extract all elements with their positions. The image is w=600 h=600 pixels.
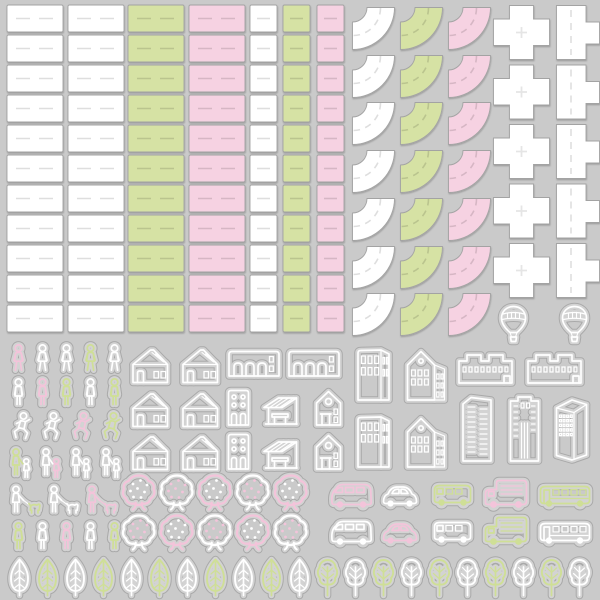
art-stroke [21, 388, 22, 395]
fruit-dot [177, 519, 180, 522]
fruit-dot [246, 496, 249, 499]
road-tile-square-straight[interactable] [283, 305, 310, 332]
art-stroke [63, 532, 64, 539]
art-stroke [87, 532, 88, 539]
fruit-dot [132, 536, 135, 539]
road-tile-square-straight[interactable] [250, 215, 277, 242]
road-tile-long-straight[interactable] [68, 245, 124, 272]
fruit-dot [295, 531, 298, 534]
sticker-vehicle-car[interactable] [384, 487, 417, 507]
road-tile-long-straight[interactable] [189, 185, 245, 212]
road-tile-square-straight[interactable] [283, 155, 310, 182]
fruit-dot [260, 484, 263, 487]
road-tile-long-straight[interactable] [7, 275, 63, 302]
tile-face [68, 155, 124, 182]
art-stroke [39, 388, 40, 395]
road-tile-long-straight[interactable] [128, 275, 184, 302]
fruit-dot [292, 536, 295, 539]
fruit-dot [219, 491, 222, 494]
sticker-person-standing[interactable] [63, 379, 71, 405]
sticker-tree-leaf[interactable] [291, 560, 308, 596]
fruit-dot [281, 490, 284, 493]
fruit-dot [257, 491, 260, 494]
fruit-dot [136, 487, 139, 490]
sticker-tree-leaf[interactable] [95, 560, 112, 596]
tile-face [7, 305, 63, 332]
fruit-dot [295, 491, 298, 494]
road-tile-long-straight[interactable] [68, 125, 124, 152]
sticker-person-standing[interactable] [39, 523, 47, 549]
sticker-tree-leaf[interactable] [263, 560, 280, 596]
tile-face [189, 275, 245, 302]
art-stroke [360, 501, 366, 507]
road-tile-square-straight[interactable] [317, 245, 344, 272]
sticker-person-standing[interactable] [15, 379, 23, 405]
road-tile-long-straight[interactable] [7, 125, 63, 152]
road-tile-long-straight[interactable] [7, 95, 63, 122]
road-tile-long-straight[interactable] [7, 155, 63, 182]
road-tile-long-straight[interactable] [128, 245, 184, 272]
road-tile-square-straight[interactable] [283, 5, 310, 32]
road-tile-square-straight[interactable] [317, 95, 344, 122]
art-stroke [360, 538, 366, 544]
sticker-person-standing[interactable] [111, 523, 119, 549]
road-tile-long-straight[interactable] [128, 155, 184, 182]
fruit-dot [260, 524, 263, 527]
fruit-dot [143, 531, 146, 534]
sticker-building-chapel-small[interactable] [317, 392, 341, 426]
sticker-person-standing[interactable] [111, 379, 119, 405]
road-tile-long-straight[interactable] [68, 5, 124, 32]
fruit-dot [178, 496, 181, 499]
fruit-dot [288, 487, 291, 490]
road-tile-long-straight[interactable] [189, 215, 245, 242]
art-stroke [87, 388, 88, 395]
road-tile-square-straight[interactable] [283, 185, 310, 212]
road-tile-square-straight[interactable] [250, 155, 277, 182]
art-stroke [387, 500, 393, 506]
fruit-dot [146, 484, 149, 487]
fruit-dot [170, 496, 173, 499]
road-tile-square-straight[interactable] [250, 125, 277, 152]
fruit-dot [216, 496, 219, 499]
fruit-dot [184, 524, 187, 527]
fruit-dot [140, 496, 143, 499]
road-tile-long-straight[interactable] [68, 305, 124, 332]
fruit-dot [250, 487, 253, 490]
road-tile-square-straight[interactable] [283, 275, 310, 302]
fruit-dot [167, 530, 170, 533]
fruit-dot [288, 527, 291, 530]
road-tile-long-straight[interactable] [189, 275, 245, 302]
art-stroke [51, 495, 52, 501]
road-tile-long-straight[interactable] [68, 155, 124, 182]
tile-face [68, 215, 124, 242]
road-tile-square-straight[interactable] [317, 155, 344, 182]
road-tile-square-straight[interactable] [317, 215, 344, 242]
road-tile-long-straight[interactable] [68, 185, 124, 212]
road-tile-long-straight[interactable] [128, 185, 184, 212]
fruit-dot [140, 536, 143, 539]
sticker-tree-leaf[interactable] [67, 560, 84, 596]
fruit-dot [298, 484, 301, 487]
sticker-tree-leaf[interactable] [39, 560, 56, 596]
fruit-dot [170, 483, 173, 486]
tile-face [68, 305, 124, 332]
sticker-vehicle-bus[interactable] [541, 524, 590, 544]
tile-face [128, 305, 184, 332]
road-tile-long-straight[interactable] [68, 65, 124, 92]
fruit-dot [222, 524, 225, 527]
art-stroke [438, 499, 444, 505]
art-stroke [21, 532, 22, 539]
art-stroke [15, 388, 16, 395]
road-tile-long-straight[interactable] [128, 95, 184, 122]
tile-face [68, 5, 124, 32]
sticker-person-walking[interactable] [86, 345, 95, 370]
road-tile-long-straight[interactable] [7, 245, 63, 272]
fruit-dot [291, 479, 294, 482]
road-tile-long-straight[interactable] [128, 5, 184, 32]
fruit-dot [215, 479, 218, 482]
sticker-tree-leaf[interactable] [151, 560, 168, 596]
road-tile-square-straight[interactable] [317, 305, 344, 332]
sticker-building-narrow[interactable] [229, 435, 249, 470]
road-tile-long-straight[interactable] [7, 185, 63, 212]
fruit-dot [208, 483, 211, 486]
art-stroke [93, 532, 94, 539]
road-tile-square-straight[interactable] [283, 245, 310, 272]
road-tile-square-straight[interactable] [283, 125, 310, 152]
art-stroke [406, 500, 412, 506]
sticker-person-walking[interactable] [110, 345, 119, 370]
road-tile-long-straight[interactable] [128, 65, 184, 92]
tile-face [7, 155, 63, 182]
road-tile-long-straight[interactable] [7, 305, 63, 332]
fruit-dot [284, 536, 287, 539]
road-tile-square-straight[interactable] [317, 125, 344, 152]
tile-face [68, 185, 124, 212]
fruit-dot [205, 490, 208, 493]
tile-face [128, 95, 184, 122]
road-tile-long-straight[interactable] [128, 125, 184, 152]
tile-face [128, 215, 184, 242]
fruit-dot [129, 490, 132, 493]
art-stroke [337, 538, 343, 544]
tile-face [68, 95, 124, 122]
sticker-person-standing[interactable] [87, 379, 95, 405]
fruit-dot [132, 496, 135, 499]
road-tile-long-straight[interactable] [128, 215, 184, 242]
road-tile-square-straight[interactable] [250, 275, 277, 302]
art-stroke [460, 499, 466, 505]
road-tile-long-straight[interactable] [189, 35, 245, 62]
tile-face [128, 185, 184, 212]
road-tile-square-straight[interactable] [250, 305, 277, 332]
cut-outline [508, 312, 520, 318]
road-tile-long-straight[interactable] [68, 35, 124, 62]
road-tile-square-straight[interactable] [250, 185, 277, 212]
fruit-dot [174, 527, 177, 530]
sticker-tree-leaf[interactable] [179, 560, 196, 596]
tile-face [7, 275, 63, 302]
art-stroke [69, 532, 70, 539]
art-stroke [577, 500, 583, 506]
sticker-person-standing[interactable] [39, 379, 47, 405]
fruit-dot [143, 491, 146, 494]
fruit-dot [219, 531, 222, 534]
sticker-person-standing[interactable] [15, 523, 23, 549]
sticker-person-standing[interactable] [63, 523, 71, 549]
fruit-dot [174, 487, 177, 490]
road-tile-long-straight[interactable] [189, 65, 245, 92]
fruit-dot [215, 519, 218, 522]
tile-face [68, 35, 124, 62]
fruit-dot [254, 536, 257, 539]
tile-face [7, 125, 63, 152]
tile-face [68, 275, 124, 302]
fruit-dot [139, 479, 142, 482]
fruit-dot [243, 530, 246, 533]
road-tile-square-straight[interactable] [283, 95, 310, 122]
fruit-dot [136, 527, 139, 530]
fruit-dot [281, 530, 284, 533]
tile-face [189, 185, 245, 212]
fruit-dot [284, 483, 287, 486]
cut-outline [468, 407, 475, 452]
tile-face [189, 65, 245, 92]
art-stroke [117, 388, 118, 395]
road-tile-long-straight[interactable] [128, 35, 184, 62]
road-tile-long-straight[interactable] [189, 95, 245, 122]
fruit-dot [284, 496, 287, 499]
sticker-tree-leaf[interactable] [123, 560, 140, 596]
fruit-dot [146, 524, 149, 527]
fruit-dot [184, 484, 187, 487]
fruit-dot [181, 531, 184, 534]
sticker-tree-leaf[interactable] [235, 560, 252, 596]
tile-face [68, 65, 124, 92]
art-stroke [43, 457, 44, 463]
fruit-dot [205, 530, 208, 533]
tile-face [189, 125, 245, 152]
tile-face [128, 125, 184, 152]
road-tile-square-straight[interactable] [317, 275, 344, 302]
road-tile-long-straight[interactable] [189, 305, 245, 332]
art-stroke [103, 457, 104, 463]
art-stroke [337, 501, 343, 507]
fruit-dot [253, 519, 256, 522]
art-stroke [460, 536, 466, 542]
fruit-dot [212, 527, 215, 530]
art-stroke [490, 538, 497, 545]
art-stroke [406, 537, 412, 543]
sticker-building-narrow[interactable] [229, 391, 249, 426]
fruit-dot [129, 530, 132, 533]
sticker-person-walking[interactable] [14, 345, 23, 370]
art-stroke [45, 388, 46, 395]
tile-face [7, 185, 63, 212]
art-stroke [111, 388, 112, 395]
sticker-person-walking[interactable] [62, 345, 71, 370]
road-tile-square-straight[interactable] [317, 5, 344, 32]
sticker-sheet-canvas [0, 0, 600, 600]
fruit-dot [257, 531, 260, 534]
fruit-dot [284, 523, 287, 526]
art-stroke [73, 457, 74, 463]
tile-face [189, 305, 245, 332]
road-tile-long-straight[interactable] [189, 5, 245, 32]
fruit-dot [208, 523, 211, 526]
road-tile-long-straight[interactable] [7, 65, 63, 92]
fruit-dot [292, 496, 295, 499]
tile-face [189, 35, 245, 62]
tile-face [7, 5, 63, 32]
road-tile-long-straight[interactable] [189, 245, 245, 272]
road-tile-square-straight[interactable] [283, 35, 310, 62]
art-stroke [387, 537, 393, 543]
road-tile-square-straight[interactable] [250, 35, 277, 62]
art-stroke [39, 532, 40, 539]
sticker-sheet-svg [0, 0, 600, 600]
fruit-dot [222, 484, 225, 487]
road-tile-long-straight[interactable] [189, 155, 245, 182]
road-tile-square-straight[interactable] [317, 65, 344, 92]
sticker-tree-leaf[interactable] [207, 560, 224, 596]
fruit-dot [208, 536, 211, 539]
road-tile-square-straight[interactable] [250, 95, 277, 122]
tile-face [128, 245, 184, 272]
art-stroke [93, 388, 94, 395]
art-stroke [546, 500, 552, 506]
road-tile-long-straight[interactable] [7, 215, 63, 242]
fruit-dot [177, 479, 180, 482]
tile-face [189, 155, 245, 182]
tile-face [189, 215, 245, 242]
tile-face [128, 155, 184, 182]
art-stroke [69, 388, 70, 395]
tile-face [128, 35, 184, 62]
road-tile-long-straight[interactable] [189, 125, 245, 152]
tile-face [128, 5, 184, 32]
art-stroke [13, 457, 14, 463]
art-stroke [577, 537, 583, 543]
art-stroke [111, 532, 112, 539]
fruit-dot [170, 523, 173, 526]
fruit-dot [254, 496, 257, 499]
art-stroke [490, 501, 497, 508]
art-stroke [89, 495, 90, 501]
cut-outline [480, 409, 487, 454]
art-stroke [13, 495, 14, 501]
road-tile-square-straight[interactable] [250, 245, 277, 272]
sticker-building-skyscraper-a[interactable] [463, 398, 491, 462]
art-stroke [546, 537, 552, 543]
tile-face [128, 65, 184, 92]
fruit-dot [291, 519, 294, 522]
road-tile-long-straight[interactable] [7, 5, 63, 32]
cut-outline [569, 312, 581, 318]
tile-face [68, 125, 124, 152]
fruit-dot [253, 479, 256, 482]
road-tile-square-straight[interactable] [283, 215, 310, 242]
fruit-dot [139, 519, 142, 522]
fruit-dot [167, 490, 170, 493]
tile-face [128, 275, 184, 302]
tile-face [189, 245, 245, 272]
fruit-dot [250, 527, 253, 530]
fruit-dot [212, 487, 215, 490]
art-stroke [438, 536, 444, 542]
sticker-tree-leaf[interactable] [11, 560, 28, 596]
road-tile-square-straight[interactable] [250, 5, 277, 32]
road-tile-long-straight[interactable] [68, 215, 124, 242]
sticker-vehicle-bus[interactable] [541, 487, 590, 507]
fruit-dot [132, 483, 135, 486]
tile-face [68, 245, 124, 272]
tile-face [189, 95, 245, 122]
fruit-dot [246, 523, 249, 526]
sticker-person-standing[interactable] [87, 523, 95, 549]
art-stroke [515, 538, 522, 545]
road-tile-square-straight[interactable] [283, 65, 310, 92]
art-stroke [15, 532, 16, 539]
art-stroke [515, 501, 522, 508]
fruit-dot [170, 536, 173, 539]
fruit-dot [216, 536, 219, 539]
road-tile-long-straight[interactable] [68, 275, 124, 302]
sticker-vehicle-car[interactable] [384, 524, 417, 544]
art-stroke [63, 388, 64, 395]
fruit-dot [208, 496, 211, 499]
fruit-dot [132, 523, 135, 526]
fruit-dot [298, 524, 301, 527]
fruit-dot [178, 536, 181, 539]
tile-face [7, 95, 63, 122]
fruit-dot [243, 490, 246, 493]
tile-face [7, 35, 63, 62]
fruit-dot [246, 483, 249, 486]
road-tile-long-straight[interactable] [7, 35, 63, 62]
tile-face [7, 245, 63, 272]
art-stroke [117, 532, 118, 539]
road-tile-square-straight[interactable] [250, 65, 277, 92]
tile-face [189, 5, 245, 32]
fruit-dot [246, 536, 249, 539]
road-tile-square-straight[interactable] [317, 185, 344, 212]
road-tiles-section [7, 5, 600, 336]
fruit-dot [181, 491, 184, 494]
tile-face [7, 215, 63, 242]
road-tile-long-straight[interactable] [68, 95, 124, 122]
sticker-person-walking[interactable] [38, 345, 47, 370]
road-tile-long-straight[interactable] [128, 305, 184, 332]
road-tile-square-straight[interactable] [317, 35, 344, 62]
tile-face [7, 65, 63, 92]
sticker-building-chapel-small[interactable] [317, 436, 341, 470]
art-stroke [45, 532, 46, 539]
